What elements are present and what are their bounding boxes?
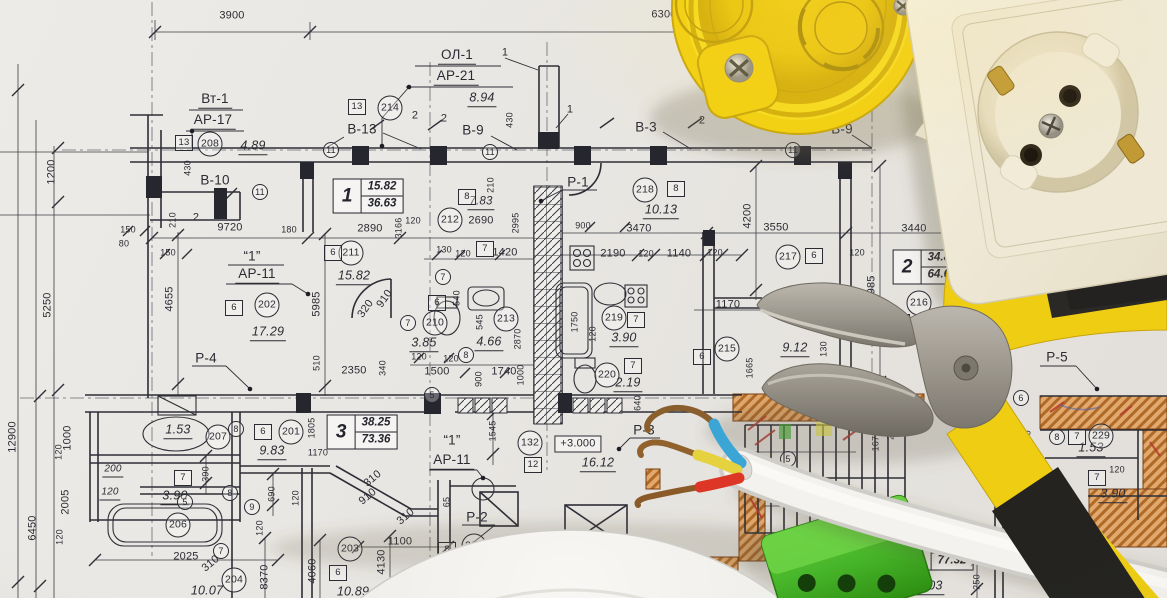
objects-layer xyxy=(0,0,1167,598)
blueprint-photo: Вт-1АР-17ОЛ-1АР-21В-10В-13В-9В-3В-9Р-1Р-… xyxy=(0,0,1167,598)
cutters-upper-jaw xyxy=(757,283,921,347)
wire-copper-mid xyxy=(640,442,698,455)
wire-copper-top xyxy=(647,408,714,430)
wire-copper-bot xyxy=(637,487,700,505)
